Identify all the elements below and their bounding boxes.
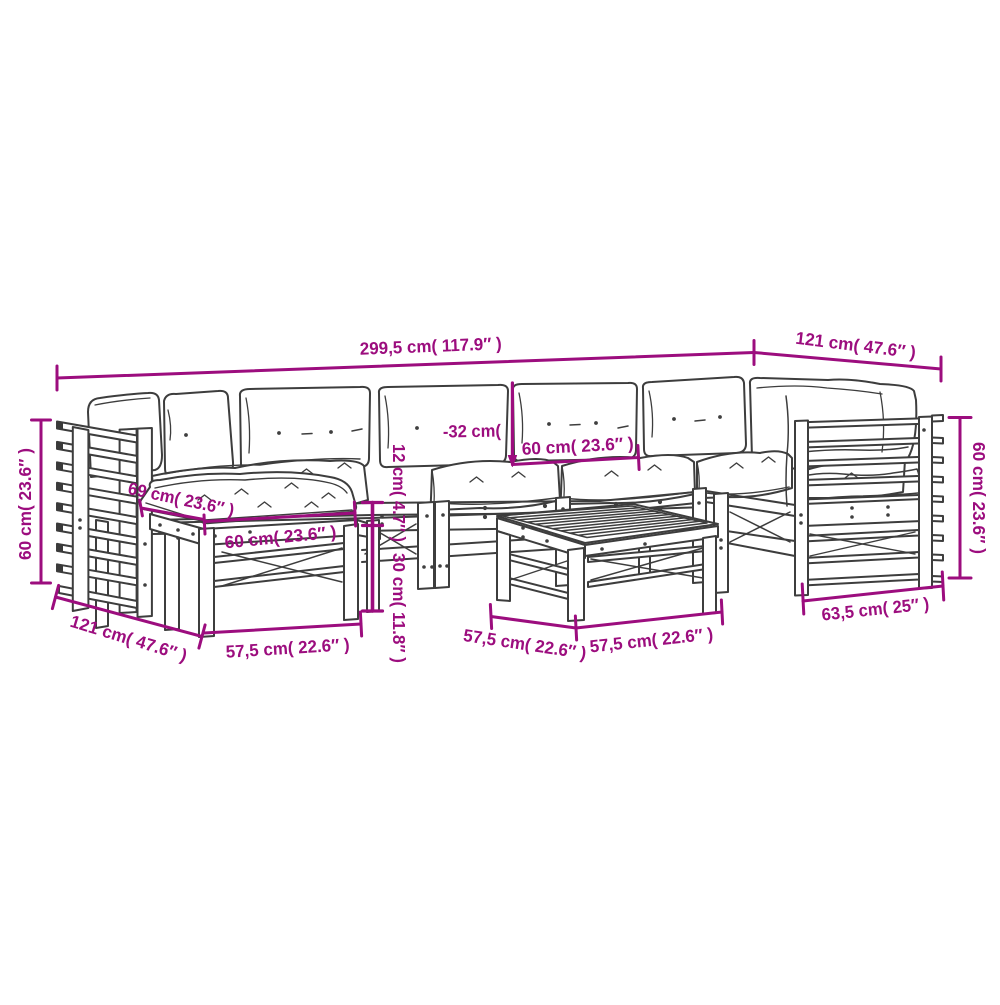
svg-text:60 cm( 23.6″ ): 60 cm( 23.6″ ): [15, 448, 35, 560]
svg-text:-32 cm(: -32 cm(: [443, 420, 501, 441]
svg-text:12 cm( 4.7″ ): 12 cm( 4.7″ ): [389, 444, 409, 542]
svg-text:30 cm( 11.8″ ): 30 cm( 11.8″ ): [389, 553, 409, 663]
svg-text:60 cm( 23.6″ ): 60 cm( 23.6″ ): [969, 442, 989, 554]
